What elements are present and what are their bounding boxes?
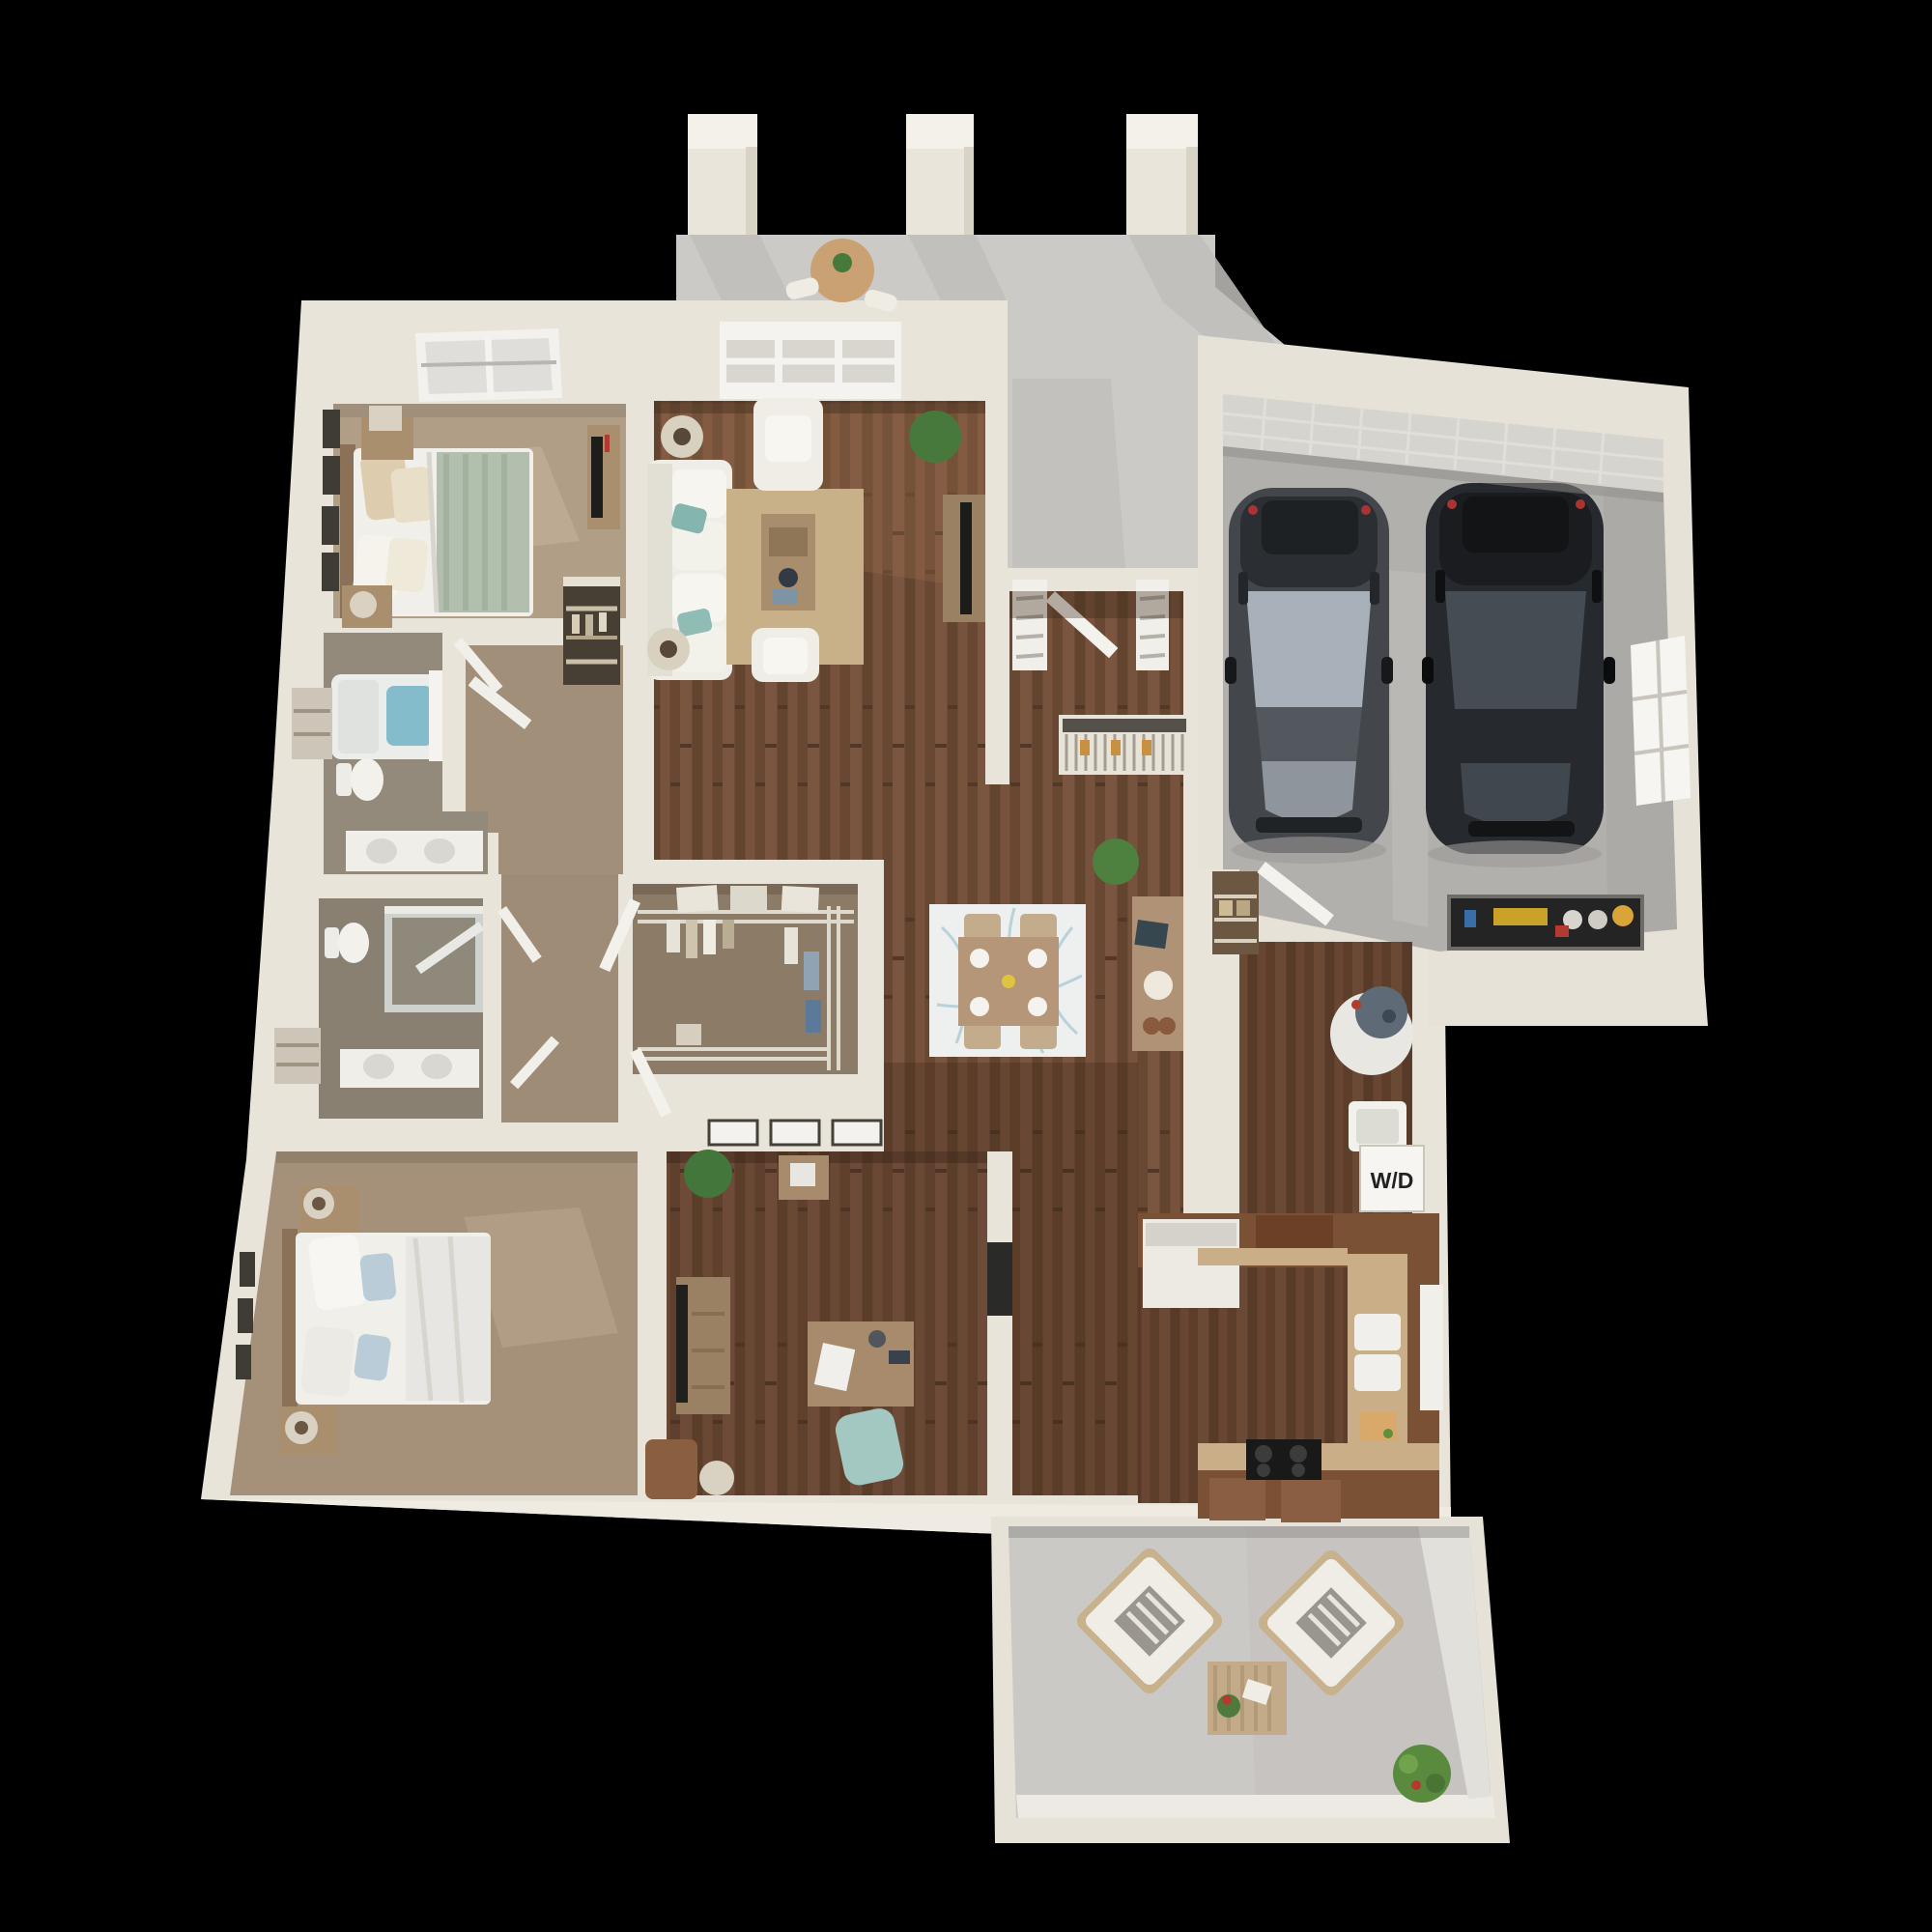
svg-text:W/D: W/D <box>1371 1168 1414 1193</box>
